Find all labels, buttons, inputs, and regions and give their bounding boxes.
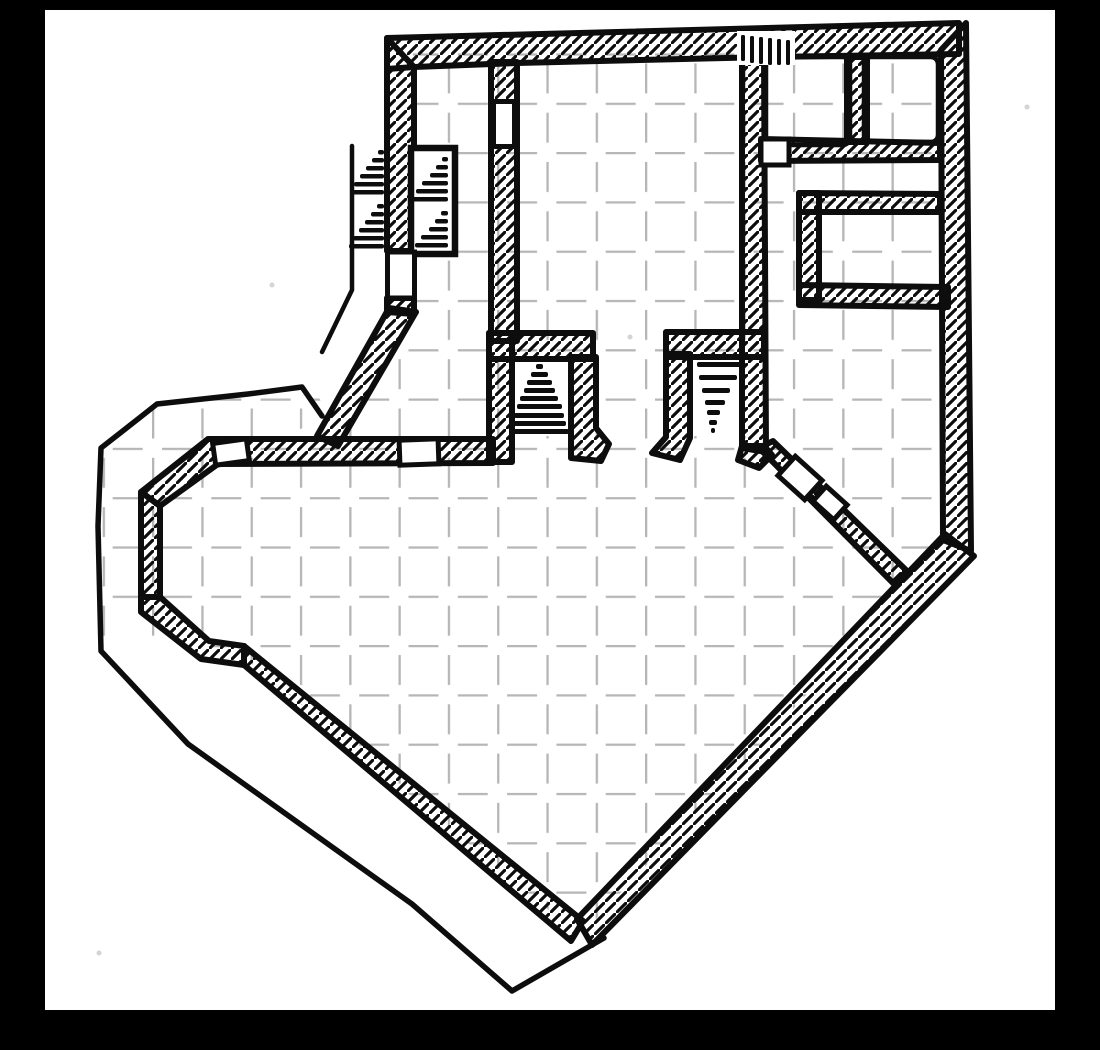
- paper-speck: [270, 283, 275, 288]
- stair-step: [430, 173, 448, 178]
- door-ne-room1-south: [761, 139, 789, 165]
- paper-speck: [97, 951, 102, 956]
- stair-step: [786, 40, 790, 65]
- door-junction-south-wall: [399, 439, 439, 465]
- stair-step: [699, 375, 737, 380]
- stair-step: [759, 37, 763, 64]
- stair-step: [416, 189, 448, 194]
- stair-step: [750, 36, 754, 63]
- stair-step: [435, 219, 448, 224]
- door-corridor-to-hall: [494, 102, 515, 147]
- stair-step: [353, 236, 384, 241]
- door-west-wall: [388, 252, 415, 298]
- stair-step: [705, 400, 725, 405]
- stair-step: [777, 39, 781, 65]
- stair-step: [702, 388, 730, 393]
- stair-step: [741, 35, 745, 61]
- stair-step: [365, 220, 384, 225]
- stair-step: [709, 420, 717, 425]
- stair-step: [372, 158, 384, 163]
- stair-step: [524, 388, 555, 393]
- stair-step: [711, 428, 715, 433]
- wall-alcove-west-left: [489, 333, 512, 462]
- stair-step: [366, 166, 384, 171]
- stair-step: [514, 413, 564, 418]
- stair-step: [441, 211, 448, 216]
- photo-frame: [0, 0, 1100, 1050]
- paper-speck: [1025, 105, 1030, 110]
- stair-step: [442, 157, 448, 162]
- stair-step: [378, 150, 384, 155]
- stair-step: [436, 165, 448, 170]
- stair-step: [531, 372, 548, 377]
- stair-step: [349, 244, 384, 249]
- stair-step: [371, 212, 384, 217]
- stair-step: [422, 181, 448, 186]
- stair-step: [350, 190, 384, 195]
- stair-step: [377, 204, 384, 209]
- stair-step: [697, 362, 743, 367]
- stair-step: [707, 410, 720, 415]
- stair-step: [509, 429, 569, 434]
- stair-step: [415, 243, 448, 248]
- stair-step: [517, 404, 562, 409]
- stair-step: [768, 38, 772, 65]
- stair-step: [527, 380, 552, 385]
- wall-inner-room-bottom: [799, 285, 948, 307]
- stair-step: [511, 421, 566, 426]
- stair-step: [429, 227, 448, 232]
- stair-step: [360, 174, 384, 179]
- stair-step: [421, 235, 448, 240]
- door-corridor-west-end: [213, 439, 250, 466]
- stair-step: [359, 228, 384, 233]
- dungeon-map-drawing: [0, 0, 1100, 1050]
- stair-step: [412, 197, 448, 202]
- wall-hall-east: [742, 55, 766, 452]
- stair-step: [520, 396, 558, 401]
- wall-west-vertical: [141, 492, 160, 597]
- stair-step: [354, 182, 384, 187]
- stair-step: [536, 364, 543, 369]
- stairs-north-wall: [737, 31, 795, 65]
